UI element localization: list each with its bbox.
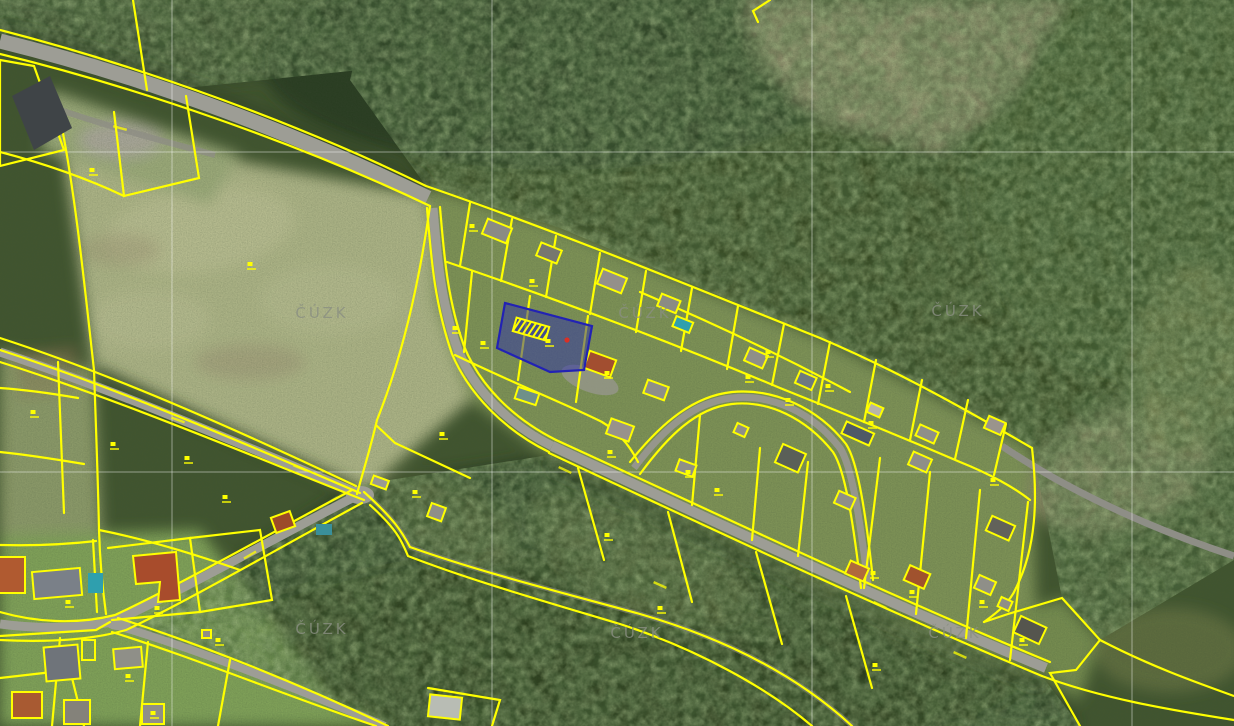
cuzk-watermark: ČÚZK [295,619,348,638]
cuzk-watermark: ČÚZK [618,303,671,322]
parcel-definition-point [564,337,569,342]
cuzk-watermark: ČÚZK [928,623,981,642]
cadastral-map-canvas: ČÚZKČÚZKČÚZKČÚZKČÚZKČÚZK [0,0,1234,726]
cuzk-watermark: ČÚZK [295,303,348,322]
cuzk-watermark: ČÚZK [610,623,663,642]
cuzk-watermark: ČÚZK [931,301,984,320]
map-viewport[interactable]: ČÚZKČÚZKČÚZKČÚZKČÚZKČÚZK [0,0,1234,726]
